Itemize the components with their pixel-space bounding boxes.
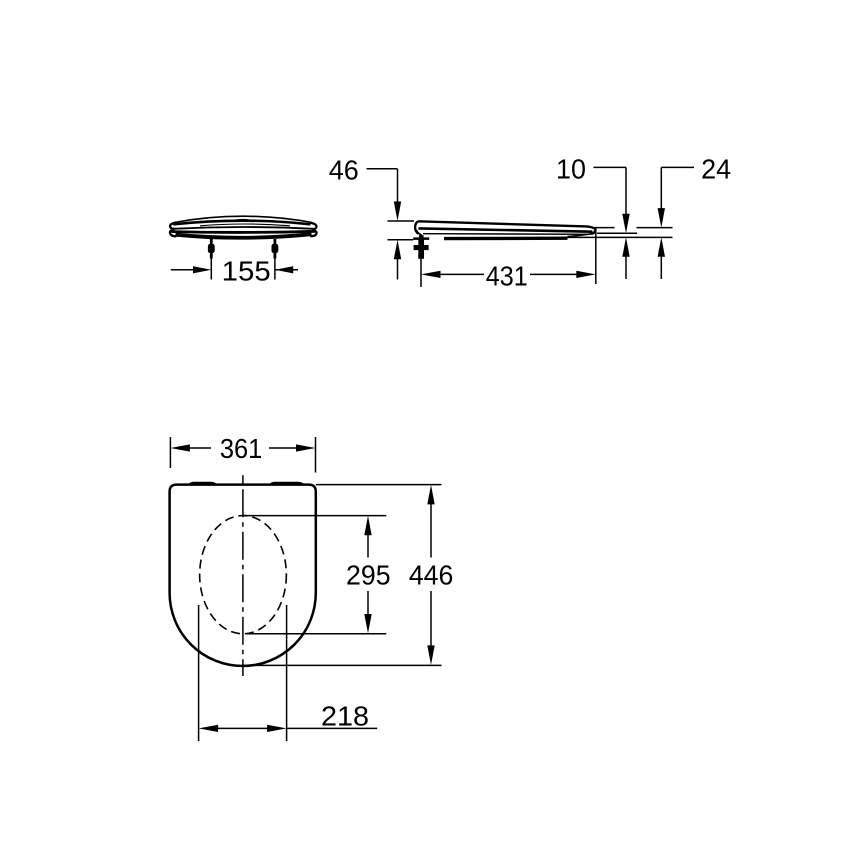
svg-text:155: 155 (222, 256, 271, 287)
svg-text:10: 10 (556, 154, 586, 185)
svg-text:431: 431 (486, 260, 528, 291)
svg-text:218: 218 (321, 701, 369, 732)
svg-text:361: 361 (220, 433, 263, 464)
svg-text:295: 295 (346, 560, 391, 591)
svg-text:46: 46 (329, 154, 359, 185)
svg-text:446: 446 (409, 560, 454, 591)
svg-text:24: 24 (701, 154, 731, 185)
